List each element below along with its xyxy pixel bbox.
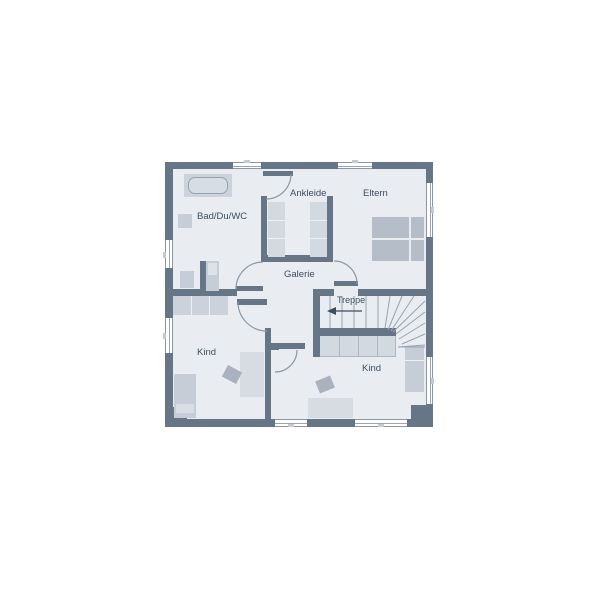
floor-plan: Bad/Du/WC Ankleide Eltern Galerie Treppe… (0, 0, 600, 600)
room-label-treppe: Treppe (337, 295, 365, 305)
room-label-kind-right: Kind (362, 364, 381, 374)
room-label-kind-left: Kind (197, 348, 216, 358)
room-label-galerie: Galerie (284, 270, 315, 280)
plan-linework (0, 0, 600, 600)
floor-plan-page: { "floorplan": { "title": "Obergeschoss … (0, 0, 600, 600)
room-label-bad: Bad/Du/WC (197, 212, 247, 222)
room-label-eltern: Eltern (363, 189, 388, 199)
stair-direction-arrow-icon (327, 307, 362, 315)
room-label-ankleide: Ankleide (290, 189, 326, 199)
